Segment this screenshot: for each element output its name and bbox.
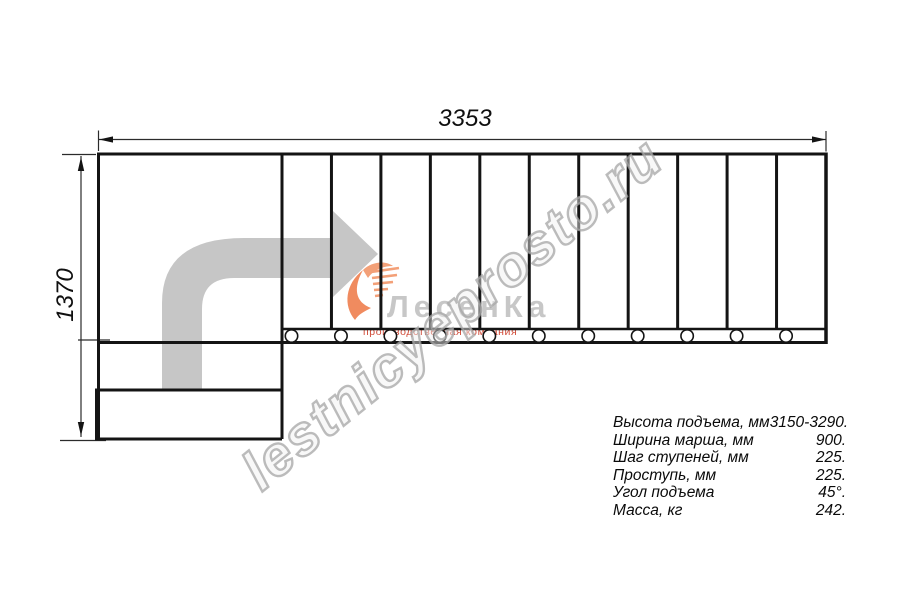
spec-row-mass: Масса, кг 242. bbox=[613, 502, 846, 520]
spec-label: Высота подъема, мм bbox=[613, 414, 770, 432]
spec-row-height: Высота подъема, мм 3150-3290. bbox=[613, 414, 846, 432]
spec-label: Угол подъема bbox=[613, 484, 714, 502]
top-dimension-value: 3353 bbox=[425, 105, 505, 133]
spec-table: Высота подъема, мм 3150-3290. Ширина мар… bbox=[613, 414, 846, 520]
spec-row-angle: Угол подъема 45°. bbox=[613, 484, 846, 502]
spec-value: 3150-3290. bbox=[770, 414, 848, 432]
spec-value: 225. bbox=[816, 449, 846, 467]
staircase-plan-drawing: ЛесенКа производственная компания bbox=[0, 0, 900, 600]
spec-value: 242. bbox=[816, 502, 846, 520]
left-dimension-value: 1370 bbox=[52, 268, 80, 321]
spec-label: Проступь, мм bbox=[613, 467, 716, 485]
spec-value: 225. bbox=[816, 467, 846, 485]
spec-row-flight-width: Ширина марша, мм 900. bbox=[613, 432, 846, 450]
spec-row-tread: Проступь, мм 225. bbox=[613, 467, 846, 485]
spec-row-step-pitch: Шаг ступеней, мм 225. bbox=[613, 449, 846, 467]
spec-label: Шаг ступеней, мм bbox=[613, 449, 749, 467]
spec-label: Ширина марша, мм bbox=[613, 432, 754, 450]
spec-value: 45°. bbox=[818, 484, 846, 502]
spec-value: 900. bbox=[816, 432, 846, 450]
spec-label: Масса, кг bbox=[613, 502, 682, 520]
annotations: 3353 1370 Высота подъема, мм 3150-3290. … bbox=[0, 0, 900, 600]
